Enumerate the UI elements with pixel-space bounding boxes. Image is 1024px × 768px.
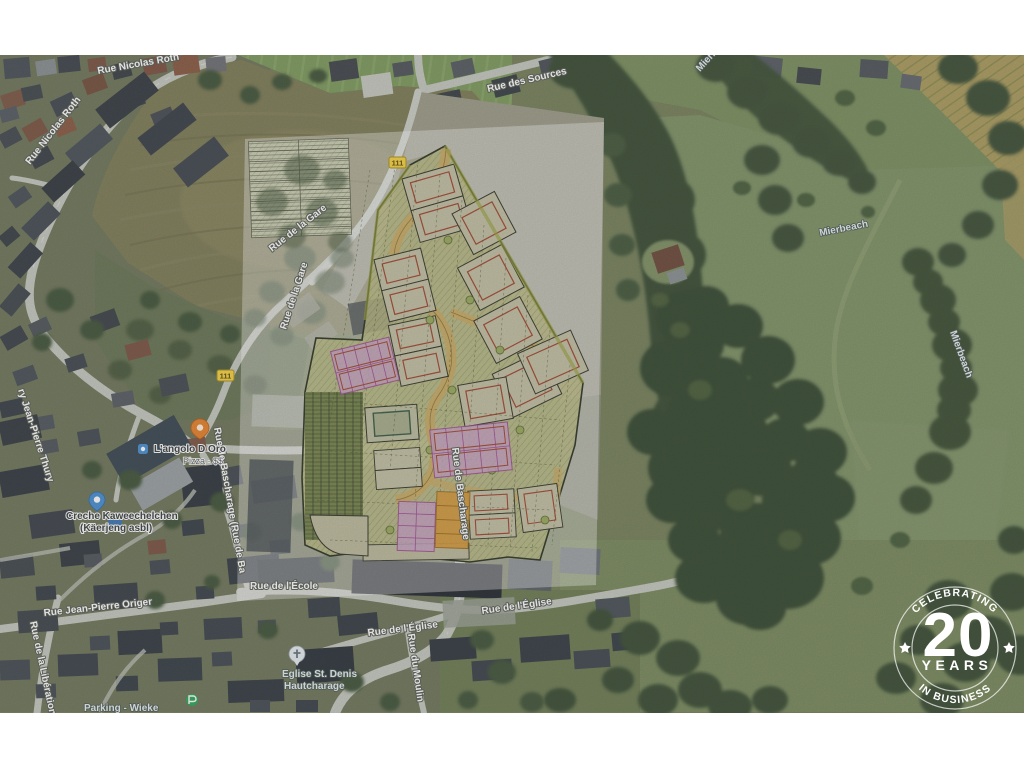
svg-text:YEARS: YEARS bbox=[922, 657, 993, 673]
